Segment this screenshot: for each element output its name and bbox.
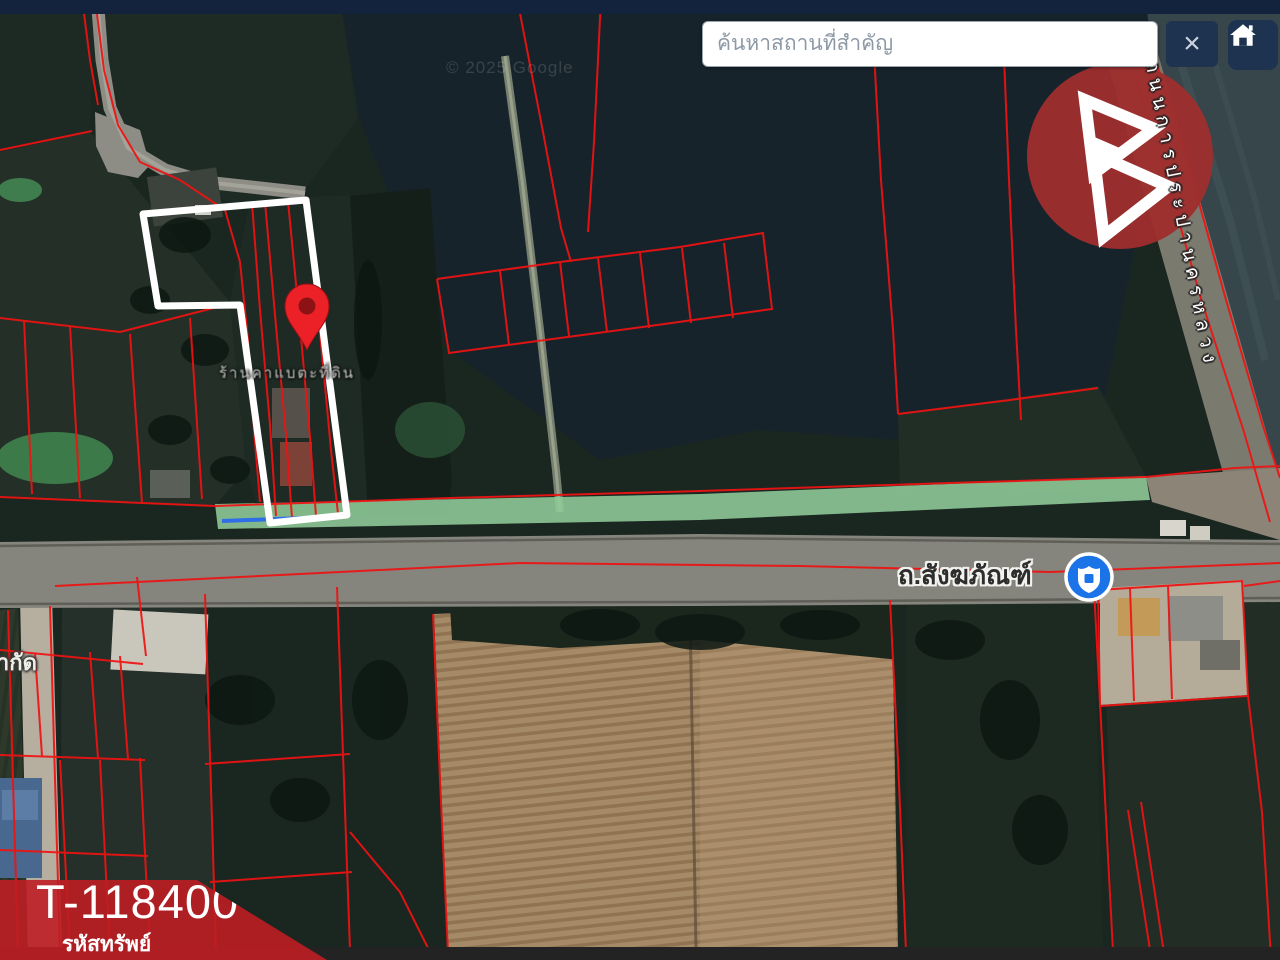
brand-logo [1027,63,1213,249]
map-art [0,0,1280,960]
property-code-caption: รหัสทรัพย์ [62,928,151,960]
satellite-map[interactable]: © 2025 Google ร้านคาแบตะที่ดิน จำกัด ถ.ส… [0,0,1280,960]
road-shield-icon [1066,554,1112,600]
close-search-button[interactable]: × [1166,21,1218,67]
search-input[interactable] [702,21,1158,67]
top-navy-bar [0,0,1280,14]
home-button[interactable] [1228,20,1278,70]
